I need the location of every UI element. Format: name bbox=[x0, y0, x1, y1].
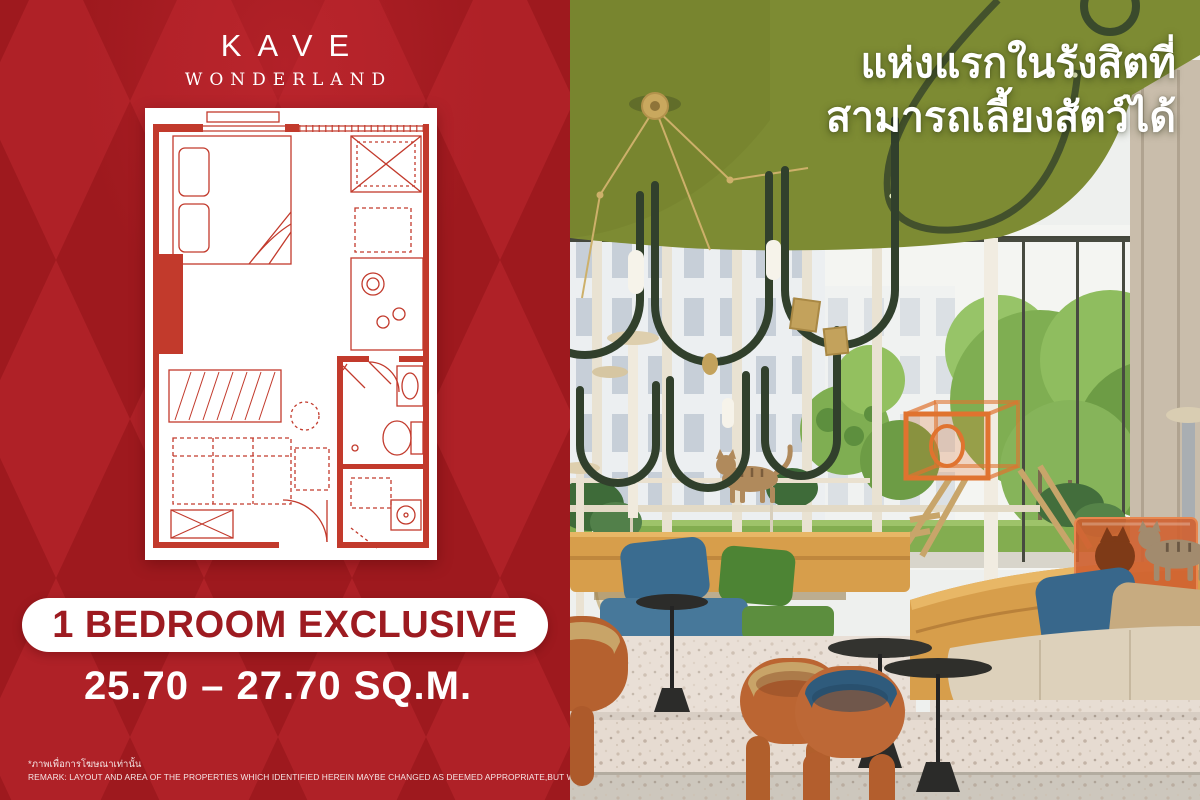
headline: แห่งแรกในรังสิตที่ สามารถเลี้ยงสัตว์ได้ bbox=[826, 36, 1176, 144]
left-red-panel: KAVE WONDERLAND bbox=[0, 0, 570, 800]
disclaimer: *ภาพเพื่อการโฆษณาเท่านั้น REMARK: LAYOUT… bbox=[28, 758, 563, 784]
floorplan-card bbox=[145, 108, 437, 560]
headline-line2: สามารถเลี้ยงสัตว์ได้ bbox=[826, 90, 1176, 144]
disclaimer-thai: *ภาพเพื่อการโฆษณาเท่านั้น bbox=[28, 758, 563, 771]
advertisement-poster: KAVE WONDERLAND bbox=[0, 0, 1200, 800]
unit-area-range: 25.70 – 27.70 SQ.M. bbox=[0, 664, 556, 709]
brand-name: KAVE bbox=[0, 28, 570, 64]
disclaimer-english: REMARK: LAYOUT AND AREA OF THE PROPERTIE… bbox=[28, 771, 563, 784]
unit-title: 1 BEDROOM EXCLUSIVE bbox=[52, 604, 518, 647]
brand-logo: KAVE WONDERLAND bbox=[0, 28, 570, 90]
headline-line1: แห่งแรกในรังสิตที่ bbox=[826, 36, 1176, 90]
floorplan-drawing bbox=[145, 108, 437, 560]
brand-wordmark-sub: WONDERLAND bbox=[0, 70, 570, 90]
hero-photo-panel: แห่งแรกในรังสิตที่ สามารถเลี้ยงสัตว์ได้ bbox=[570, 0, 1200, 800]
unit-title-pill: 1 BEDROOM EXCLUSIVE bbox=[22, 598, 548, 652]
